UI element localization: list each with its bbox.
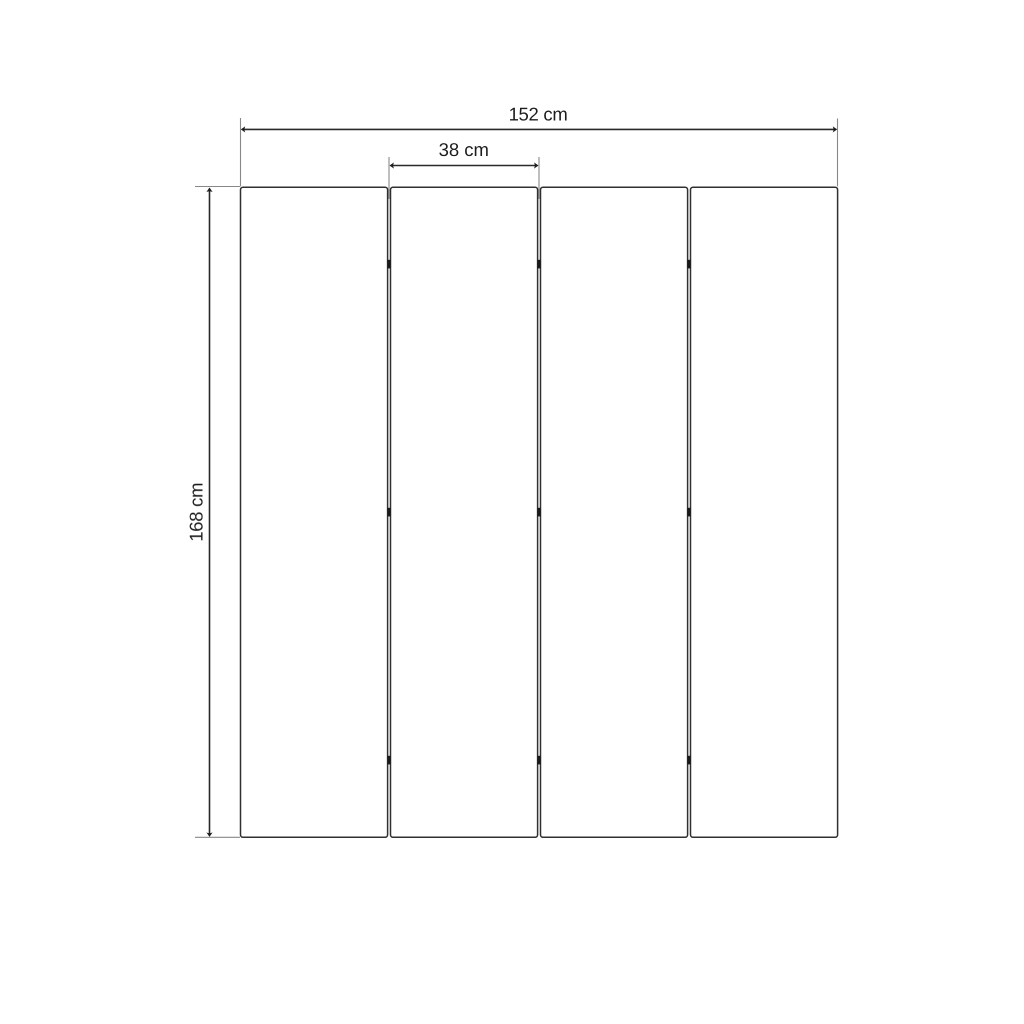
- svg-text:168 cm: 168 cm: [186, 483, 207, 542]
- svg-text:152 cm: 152 cm: [509, 103, 568, 124]
- svg-text:38 cm: 38 cm: [439, 139, 489, 160]
